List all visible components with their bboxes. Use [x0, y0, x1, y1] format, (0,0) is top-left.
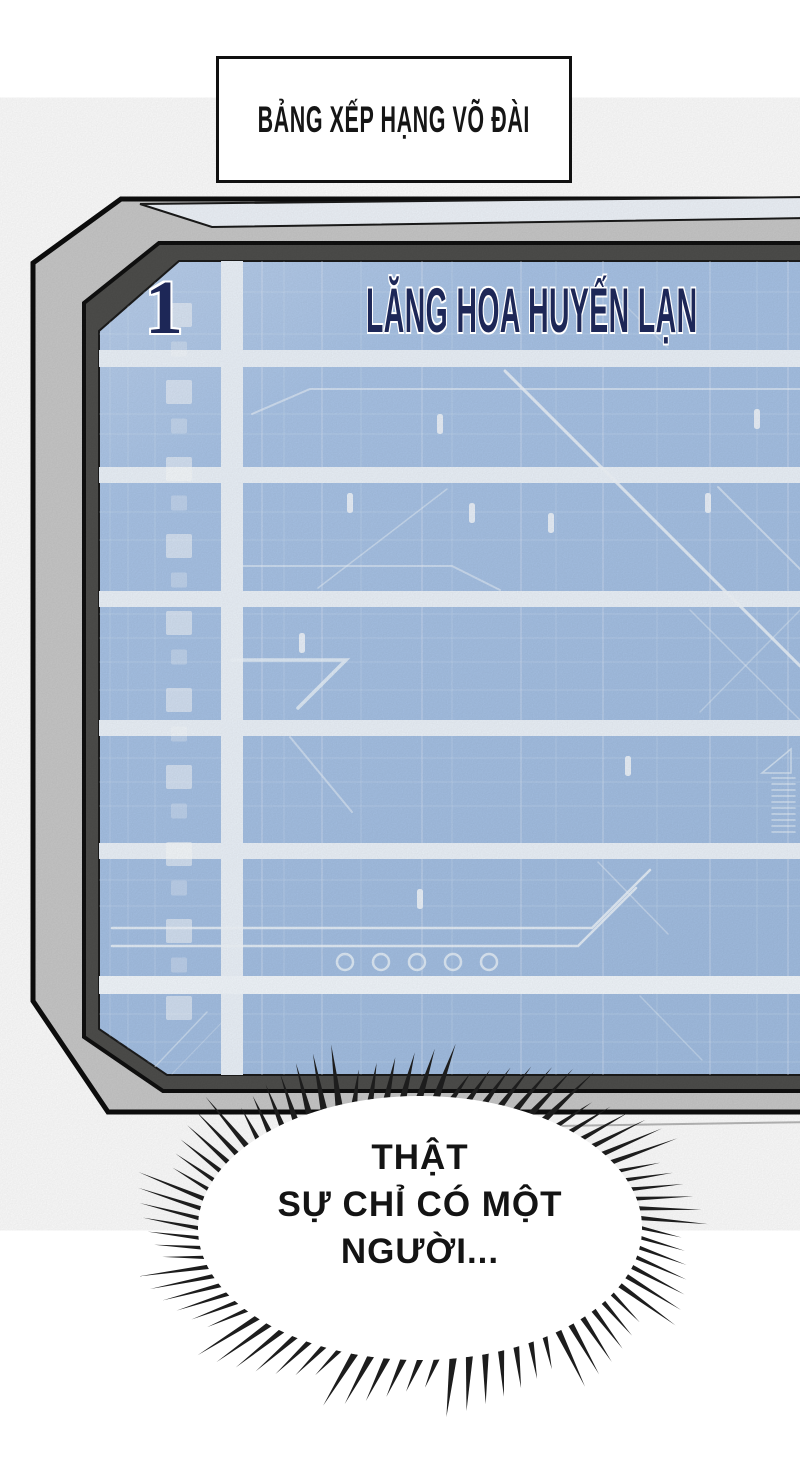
player-name: LĂNG HOA HUYẾN LẠN [366, 274, 564, 348]
speech-bubble-text: THẬT SỰ CHỈ CÓ MỘT NGƯỜI... [200, 1134, 640, 1275]
rank-number: 1 [134, 268, 194, 348]
bubble-line-2: SỰ CHỈ CÓ MỘT [200, 1181, 640, 1228]
bubble-line-3: NGƯỜI... [200, 1228, 640, 1275]
title-box-label: BẢNG XẾP HẠNG VÕ ĐÀI [258, 99, 530, 141]
bubble-line-1: THẬT [200, 1134, 640, 1181]
title-box: BẢNG XẾP HẠNG VÕ ĐÀI [216, 56, 572, 183]
